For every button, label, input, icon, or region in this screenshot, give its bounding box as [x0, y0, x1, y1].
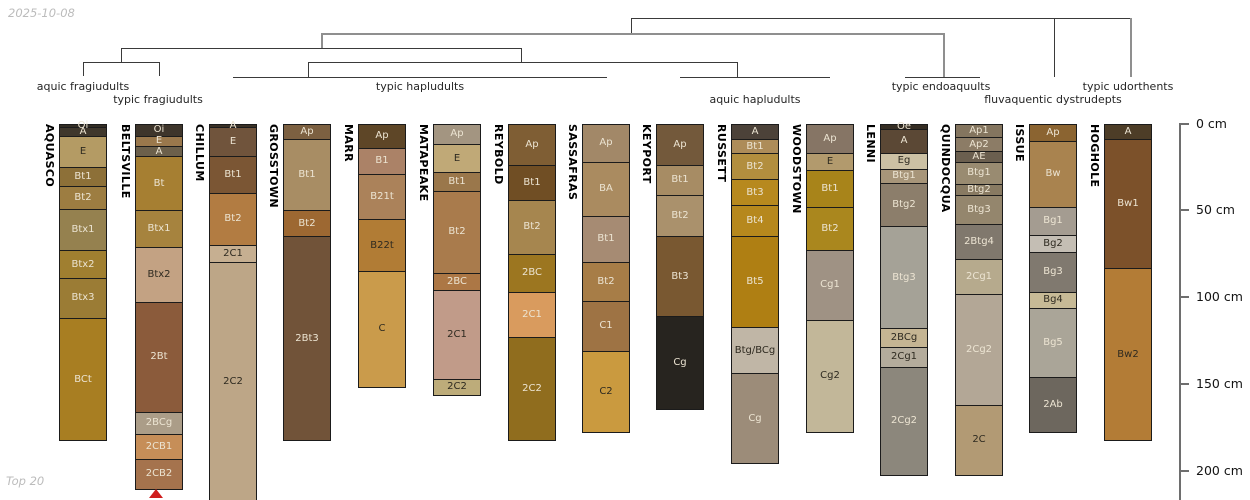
column-name-grosstown: GROSSTOWN	[267, 124, 280, 208]
horizon-beltsville-btx1: Btx1	[136, 211, 182, 247]
horizon-label: Bt5	[746, 277, 763, 287]
soil-column-keyport: ApBt1Bt2Bt3Cg	[656, 124, 704, 411]
horizon-aquasco-a: A	[60, 128, 106, 137]
taxon-label-fluvaquentic-dystrudepts: fluvaquentic dystrudepts	[984, 93, 1122, 106]
column-name-quindocqua: QUINDOCQUA	[939, 124, 952, 213]
dendrogram-segment	[521, 48, 522, 62]
horizon-label: Ap1	[969, 126, 989, 136]
horizon-keyport-bt2: Bt2	[657, 196, 703, 238]
taxon-label-typic-hapludults: typic hapludults	[376, 80, 464, 93]
horizon-label: 2Cg1	[891, 352, 917, 362]
horizon-label: Bt2	[74, 193, 91, 203]
horizon-label: Bt1	[298, 170, 315, 180]
horizon-label: Ap	[525, 140, 538, 150]
horizon-label: B21t	[370, 192, 394, 202]
horizon-beltsville-bt: Bt	[136, 157, 182, 211]
horizon-woodstown-cg2: Cg2	[807, 321, 853, 432]
horizon-label: Btg2	[967, 185, 991, 195]
horizon-label: Bt1	[746, 142, 763, 152]
horizon-label: Bt4	[746, 216, 763, 226]
horizon-label: Bt2	[597, 277, 614, 287]
horizon-label: Bw2	[1117, 350, 1138, 360]
soil-column-reybold: ApBt1Bt22BC2C12C2	[508, 124, 556, 442]
horizon-label: Bt3	[671, 272, 688, 282]
dendrogram-segment	[680, 77, 830, 78]
horizon-label: Bw	[1045, 169, 1060, 179]
horizon-russett-a: A	[732, 125, 778, 141]
horizon-russett-btg-bcg: Btg/BCg	[732, 328, 778, 375]
horizon-beltsville-2bt: 2Bt	[136, 303, 182, 412]
footer-label: Top 20	[6, 474, 44, 488]
horizon-label: B1	[375, 156, 388, 166]
horizon-label: Bt3	[746, 188, 763, 198]
dendrogram-segment	[737, 62, 738, 77]
horizon-label: Btg2	[892, 200, 916, 210]
horizon-label: 2BC	[522, 268, 542, 278]
depth-tick-100-cm	[1179, 296, 1189, 298]
horizon-russett-bt1: Bt1	[732, 140, 778, 154]
horizon-grosstown-bt2: Bt2	[284, 211, 330, 237]
horizon-sassafras-c1: C1	[583, 302, 629, 352]
horizon-quindocqua-btg1: Btg1	[956, 163, 1002, 186]
horizon-lenni-btg3: Btg3	[881, 227, 927, 329]
horizon-label: Btg/BCg	[735, 346, 776, 356]
horizon-matapeake-2c2: 2C2	[434, 380, 480, 396]
soil-profile-dendrogram-figure: 2025-10-08 aquic fragiudultstypic fragiu…	[0, 0, 1250, 500]
horizon-quindocqua-ap1: Ap1	[956, 125, 1002, 139]
horizon-label: Btg3	[967, 205, 991, 215]
dendrogram-segment	[159, 62, 160, 76]
horizon-lenni-2cg1: 2Cg1	[881, 348, 927, 367]
horizon-quindocqua-2cg1: 2Cg1	[956, 260, 1002, 295]
horizon-quindocqua-2c: 2C	[956, 406, 1002, 475]
horizon-aquasco-e: E	[60, 137, 106, 168]
horizon-label: Bt2	[523, 222, 540, 232]
horizon-label: Btg1	[892, 171, 916, 181]
dendrogram-segment	[905, 77, 980, 78]
column-name-keyport: KEYPORT	[640, 124, 653, 184]
horizon-label: E	[230, 137, 236, 147]
continues-deeper-marker	[149, 489, 163, 498]
horizon-label: Oi	[154, 125, 165, 135]
column-name-sassafras: SASSAFRAS	[566, 124, 579, 200]
dendrogram-segment	[121, 48, 122, 62]
horizon-label: 2CB1	[146, 442, 173, 452]
soil-column-marr: ApB1B21tB22tC	[358, 124, 406, 388]
horizon-keyport-ap: Ap	[657, 125, 703, 167]
horizon-label: BCt	[74, 375, 92, 385]
horizon-issue-bg5: Bg5	[1030, 309, 1076, 378]
taxon-label-aquic-fragiudults: aquic fragiudults	[37, 80, 130, 93]
horizon-matapeake-2c1: 2C1	[434, 291, 480, 380]
horizon-aquasco-bt2: Bt2	[60, 187, 106, 210]
horizon-issue-bg3: Bg3	[1030, 253, 1076, 293]
horizon-label: Ap	[1046, 128, 1059, 138]
horizon-label: Bg1	[1043, 216, 1063, 226]
taxon-label-typic-endoaquults: typic endoaquults	[892, 80, 991, 93]
horizon-label: Bt2	[298, 219, 315, 229]
horizon-issue-2ab: 2Ab	[1030, 378, 1076, 432]
horizon-label: Bt1	[523, 178, 540, 188]
soil-column-matapeake: ApEBt1Bt22BC2C12C2	[433, 124, 481, 397]
horizon-label: Ap	[673, 140, 686, 150]
horizon-matapeake-bt1: Bt1	[434, 173, 480, 192]
horizon-label: Ap2	[969, 140, 989, 150]
horizon-keyport-cg: Cg	[657, 317, 703, 409]
horizon-marr-c: C	[359, 272, 405, 387]
depth-tick-label-150-cm: 150 cm	[1196, 376, 1243, 392]
horizon-lenni-btg2: Btg2	[881, 184, 927, 227]
horizon-label: E	[827, 157, 833, 167]
horizon-marr-b1: B1	[359, 149, 405, 175]
depth-tick-0-cm	[1179, 123, 1189, 125]
horizon-label: 2Ab	[1043, 400, 1063, 410]
horizon-lenni-2bcg: 2BCg	[881, 329, 927, 348]
soil-column-woodstown: ApEBt1Bt2Cg1Cg2	[806, 124, 854, 433]
horizon-label: 2C1	[223, 249, 243, 259]
horizon-russett-bt4: Bt4	[732, 206, 778, 237]
horizon-beltsville-2bcg: 2BCg	[136, 413, 182, 436]
horizon-lenni-btg1: Btg1	[881, 170, 927, 184]
horizon-label: C1	[599, 321, 612, 331]
horizon-chillum-bt2: Bt2	[210, 194, 256, 246]
dendrogram-segment	[321, 33, 323, 48]
horizon-label: Bt1	[821, 184, 838, 194]
soil-column-beltsville: OiEABtBtx1Btx22Bt2BCg2CB12CB2	[135, 124, 183, 491]
date-label: 2025-10-08	[8, 6, 75, 20]
dendrogram-segment	[631, 18, 632, 33]
horizon-label: AE	[972, 152, 985, 162]
horizon-chillum-e: E	[210, 128, 256, 158]
horizon-lenni-eg: Eg	[881, 154, 927, 170]
horizon-grosstown-bt1: Bt1	[284, 140, 330, 211]
horizon-label: Cg	[748, 414, 761, 424]
soil-column-aquasco: OiAEBt1Bt2Btx1Btx2Btx3BCt	[59, 124, 107, 442]
horizon-label: Bt2	[821, 224, 838, 234]
dendrogram-segment	[308, 62, 309, 77]
horizon-aquasco-btx2: Btx2	[60, 251, 106, 279]
horizon-label: BA	[599, 184, 613, 194]
horizon-woodstown-ap: Ap	[807, 125, 853, 155]
horizon-label: Bg2	[1043, 239, 1063, 249]
horizon-lenni-2cg2: 2Cg2	[881, 368, 927, 476]
horizon-label: Bt2	[224, 214, 241, 224]
horizon-label: 2BCg	[146, 418, 172, 428]
horizon-label: Btx1	[147, 224, 170, 234]
horizon-label: 2C2	[447, 382, 467, 392]
column-name-aquasco: AQUASCO	[43, 124, 56, 187]
horizon-aquasco-bt1: Bt1	[60, 168, 106, 187]
horizon-label: Bt1	[74, 172, 91, 182]
horizon-keyport-bt1: Bt1	[657, 166, 703, 196]
horizon-grosstown-2bt3: 2Bt3	[284, 237, 330, 440]
horizon-matapeake-e: E	[434, 145, 480, 173]
horizon-grosstown-ap: Ap	[284, 125, 330, 141]
horizon-label: 2BC	[447, 277, 467, 287]
soil-column-chillum: AEBt1Bt22C12C2	[209, 124, 257, 500]
horizon-issue-bg2: Bg2	[1030, 236, 1076, 253]
dendrogram-segment	[1054, 18, 1055, 77]
horizon-chillum-2c1: 2C1	[210, 246, 256, 263]
dendrogram-segment	[83, 62, 84, 76]
soil-column-russett: ABt1Bt2Bt3Bt4Bt5Btg/BCgCg	[731, 124, 779, 465]
horizon-label: Bt1	[671, 175, 688, 185]
horizon-label: A	[901, 136, 908, 146]
horizon-label: A	[752, 127, 759, 137]
horizon-label: B22t	[370, 241, 394, 251]
horizon-label: Cg	[673, 358, 686, 368]
horizon-label: E	[80, 147, 86, 157]
horizon-label: Btx3	[71, 293, 94, 303]
depth-tick-label-200-cm: 200 cm	[1196, 463, 1243, 479]
dendrogram-segment	[233, 77, 607, 78]
horizon-label: A	[80, 127, 87, 137]
horizon-label: C2	[599, 387, 612, 397]
horizon-label: Bt2	[448, 227, 465, 237]
horizon-sassafras-ba: BA	[583, 163, 629, 217]
horizon-label: C	[379, 324, 386, 334]
horizon-label: 2Cg2	[891, 416, 917, 426]
depth-axis-line	[1179, 124, 1181, 500]
horizon-hoghole-bw2: Bw2	[1105, 269, 1151, 441]
horizon-label: Bt2	[671, 211, 688, 221]
horizon-hoghole-bw1: Bw1	[1105, 140, 1151, 268]
horizon-keyport-bt3: Bt3	[657, 237, 703, 317]
horizon-woodstown-e: E	[807, 154, 853, 171]
horizon-label: 2C1	[447, 330, 467, 340]
horizon-label: 2Cg2	[966, 345, 992, 355]
horizon-lenni-a: A	[881, 130, 927, 154]
horizon-label: Bt1	[597, 234, 614, 244]
dendrogram-segment	[631, 18, 1130, 19]
horizon-label: Bt2	[746, 162, 763, 172]
column-name-beltsville: BELTSVILLE	[119, 124, 132, 199]
depth-tick-200-cm	[1179, 470, 1189, 472]
horizon-label: Bt1	[448, 177, 465, 187]
horizon-label: Cg1	[820, 280, 840, 290]
horizon-issue-ap: Ap	[1030, 125, 1076, 142]
column-name-hoghole: HOGHOLE	[1088, 124, 1101, 187]
dendrogram-segment	[83, 62, 159, 63]
dendrogram-segment	[943, 33, 945, 77]
horizon-label: Btx2	[71, 260, 94, 270]
horizon-matapeake-bt2: Bt2	[434, 192, 480, 274]
horizon-label: Ap	[300, 127, 313, 137]
soil-column-sassafras: ApBABt1Bt2C1C2	[582, 124, 630, 433]
soil-column-lenni: OeAEgBtg1Btg2Btg32BCg2Cg12Cg2	[880, 124, 928, 477]
column-name-russett: RUSSETT	[715, 124, 728, 182]
horizon-label: Bg4	[1043, 295, 1063, 305]
taxon-label-typic-udorthents: typic udorthents	[1083, 80, 1174, 93]
horizon-beltsville-2cb2: 2CB2	[136, 460, 182, 490]
horizon-sassafras-bt2: Bt2	[583, 263, 629, 301]
horizon-label: Btg1	[967, 168, 991, 178]
horizon-quindocqua-btg3: Btg3	[956, 196, 1002, 226]
column-name-woodstown: WOODSTOWN	[790, 124, 803, 214]
horizon-woodstown-bt1: Bt1	[807, 171, 853, 207]
horizon-hoghole-a: A	[1105, 125, 1151, 141]
horizon-issue-bw: Bw	[1030, 142, 1076, 208]
horizon-label: Bt1	[224, 170, 241, 180]
horizon-woodstown-bt2: Bt2	[807, 208, 853, 251]
horizon-reybold-2c2: 2C2	[509, 338, 555, 440]
horizon-marr-b22t: B22t	[359, 220, 405, 272]
column-name-chillum: CHILLUM	[193, 124, 206, 182]
horizon-label: A	[1125, 127, 1132, 137]
horizon-reybold-ap: Ap	[509, 125, 555, 167]
horizon-woodstown-cg1: Cg1	[807, 251, 853, 320]
horizon-label: 2BCg	[891, 333, 917, 343]
horizon-matapeake-2bc: 2BC	[434, 274, 480, 291]
horizon-label: 2C2	[522, 384, 542, 394]
horizon-label: Btx1	[71, 225, 94, 235]
column-name-reybold: REYBOLD	[492, 124, 505, 185]
horizon-quindocqua-ae: AE	[956, 152, 1002, 162]
horizon-matapeake-ap: Ap	[434, 125, 480, 146]
horizon-marr-ap: Ap	[359, 125, 405, 149]
horizon-beltsville-a: A	[136, 147, 182, 157]
horizon-issue-bg1: Bg1	[1030, 208, 1076, 236]
horizon-sassafras-c2: C2	[583, 352, 629, 432]
horizon-label: 2Bt3	[295, 334, 319, 344]
horizon-label: Cg2	[820, 371, 840, 381]
horizon-label: 2CB2	[146, 469, 173, 479]
dendrogram-segment	[1130, 18, 1132, 77]
horizon-label: 2C1	[522, 310, 542, 320]
horizon-label: Bg5	[1043, 338, 1063, 348]
column-name-issue: ISSUE	[1013, 124, 1026, 162]
horizon-label: E	[454, 154, 460, 164]
horizon-label: 2Bt	[150, 352, 167, 362]
horizon-label: Bw1	[1117, 199, 1138, 209]
horizon-reybold-bt1: Bt1	[509, 166, 555, 201]
horizon-sassafras-ap: Ap	[583, 125, 629, 163]
horizon-aquasco-btx3: Btx3	[60, 279, 106, 319]
horizon-label: Ap	[450, 129, 463, 139]
horizon-label: Ap	[823, 134, 836, 144]
dendrogram-segment	[308, 62, 737, 63]
horizon-russett-cg: Cg	[732, 374, 778, 463]
horizon-label: 2C2	[223, 377, 243, 387]
taxon-label-aquic-hapludults: aquic hapludults	[709, 93, 800, 106]
depth-tick-label-50-cm: 50 cm	[1196, 202, 1235, 218]
horizon-chillum-2c2: 2C2	[210, 263, 256, 500]
horizon-russett-bt3: Bt3	[732, 180, 778, 206]
horizon-quindocqua-2cg2: 2Cg2	[956, 295, 1002, 406]
horizon-label: 2Btg4	[964, 237, 994, 247]
horizon-label: 2Cg1	[966, 272, 992, 282]
column-name-matapeake: MATAPEAKE	[417, 124, 430, 202]
horizon-label: Ap	[599, 138, 612, 148]
horizon-marr-b21t: B21t	[359, 175, 405, 220]
horizon-label: Btg3	[892, 273, 916, 283]
dendrogram-segment	[321, 33, 943, 35]
depth-tick-150-cm	[1179, 383, 1189, 385]
horizon-sassafras-bt1: Bt1	[583, 217, 629, 264]
horizon-aquasco-bct: BCt	[60, 319, 106, 441]
horizon-quindocqua-btg2: Btg2	[956, 185, 1002, 195]
horizon-beltsville-btx2: Btx2	[136, 248, 182, 304]
soil-column-hoghole: ABw1Bw2	[1104, 124, 1152, 442]
horizon-label: Ap	[375, 131, 388, 141]
horizon-aquasco-btx1: Btx1	[60, 210, 106, 252]
horizon-label: Bt	[154, 179, 165, 189]
horizon-label: E	[156, 136, 162, 146]
taxon-label-typic-fragiudults: typic fragiudults	[113, 93, 203, 106]
column-name-lenni: LENNI	[864, 124, 877, 163]
horizon-issue-bg4: Bg4	[1030, 293, 1076, 309]
soil-column-grosstown: ApBt1Bt22Bt3	[283, 124, 331, 442]
horizon-reybold-bt2: Bt2	[509, 201, 555, 255]
horizon-label: Btx2	[147, 270, 170, 280]
soil-column-quindocqua: Ap1Ap2AEBtg1Btg2Btg32Btg42Cg12Cg22C	[955, 124, 1003, 477]
depth-tick-label-0-cm: 0 cm	[1196, 116, 1227, 132]
horizon-reybold-2c1: 2C1	[509, 293, 555, 338]
horizon-russett-bt5: Bt5	[732, 237, 778, 327]
horizon-quindocqua-2btg4: 2Btg4	[956, 225, 1002, 260]
horizon-label: Bg3	[1043, 267, 1063, 277]
depth-tick-label-100-cm: 100 cm	[1196, 289, 1243, 305]
horizon-label: 2C	[972, 435, 985, 445]
dendrogram-segment	[121, 48, 521, 49]
column-name-marr: MARR	[342, 124, 355, 162]
horizon-reybold-2bc: 2BC	[509, 255, 555, 293]
horizon-label: Eg	[898, 156, 911, 166]
horizon-russett-bt2: Bt2	[732, 154, 778, 180]
horizon-chillum-bt1: Bt1	[210, 157, 256, 193]
soil-column-issue: ApBwBg1Bg2Bg3Bg4Bg52Ab	[1029, 124, 1077, 433]
horizon-label: A	[156, 147, 163, 157]
horizon-beltsville-2cb1: 2CB1	[136, 435, 182, 459]
depth-tick-50-cm	[1179, 209, 1189, 211]
